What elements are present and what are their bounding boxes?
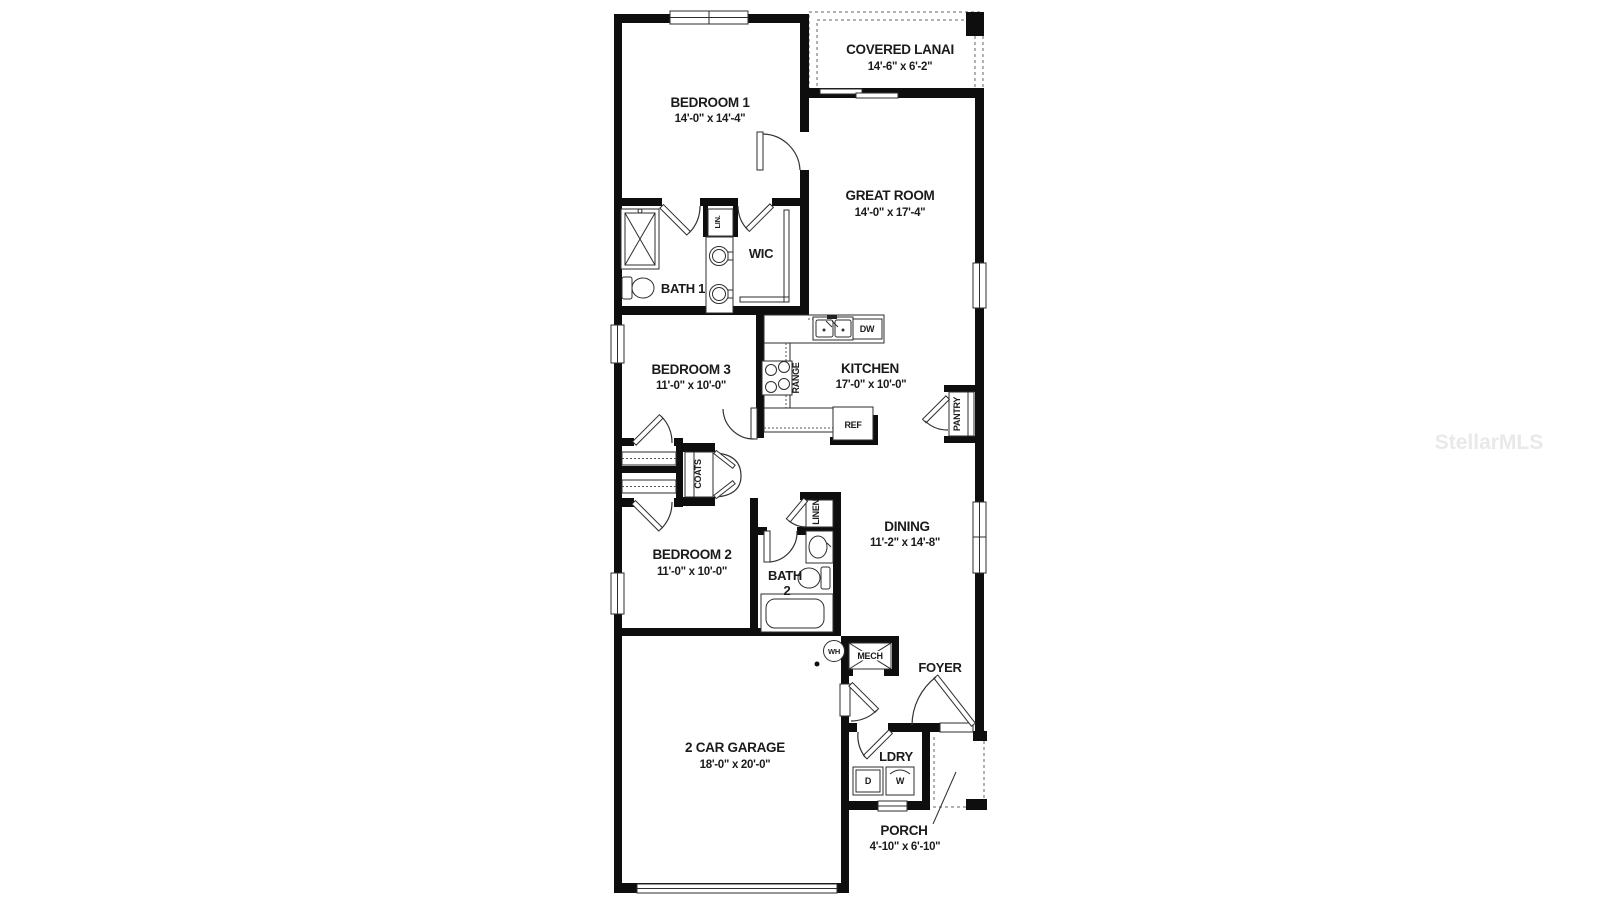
- dining-label: DINING 11'-2" x 14'-8": [870, 519, 940, 549]
- vanity-bath2: [806, 531, 833, 563]
- bathtub: [761, 594, 833, 632]
- laundry-name: LDRY: [879, 749, 913, 764]
- laundry-window: [878, 801, 907, 811]
- porch-dims: 4'-10" x 6'-10": [870, 841, 941, 853]
- garage-entry-opening: [840, 684, 850, 716]
- covered-lanai-name: COVERED LANAI: [846, 42, 954, 57]
- kitchen-dims: 17'-0" x 10'-0": [836, 379, 907, 391]
- garage-door: [637, 884, 837, 893]
- foyer-name: FOYER: [918, 660, 962, 675]
- bedroom2-label: BEDROOM 2 11'-0" x 10'-0": [652, 547, 731, 578]
- mech-closet: MECH: [849, 643, 891, 669]
- pantry-door: [923, 396, 950, 430]
- front-door-opening: [940, 723, 973, 732]
- kitchen-label: KITCHEN 17'-0" x 10'-0": [836, 361, 907, 391]
- covered-lanai-label: COVERED LANAI 14'-6" x 6'-2": [846, 42, 954, 73]
- washer-label: W: [896, 776, 905, 786]
- covered-lanai-dims: 14'-6" x 6'-2": [868, 61, 933, 73]
- bedroom3-dims: 11'-0" x 10'-0": [656, 380, 726, 392]
- bath2-name-line1: BATH: [768, 568, 802, 583]
- bedroom2-door: [632, 501, 672, 531]
- dining-dims: 11'-2" x 14'-8": [870, 537, 940, 549]
- great-room-window: [973, 263, 986, 308]
- dryer: D: [853, 767, 883, 795]
- utility-fixtures: WH MECH D W: [815, 641, 915, 796]
- garage-label: 2 CAR GARAGE 18'-0" x 20'-0": [685, 740, 785, 771]
- front-door: [912, 675, 975, 726]
- washer: W: [886, 767, 914, 795]
- shower: [621, 209, 659, 269]
- stellar-mls-watermark: StellarMLS: [1435, 431, 1544, 454]
- water-heater: WH: [824, 641, 845, 662]
- hall-kitchen-door: [723, 408, 757, 439]
- bedroom3-label: BEDROOM 3 11'-0" x 10'-0": [651, 362, 731, 392]
- great-room-label: GREAT ROOM 14'-0" x 17'-4": [846, 188, 935, 219]
- kitchen-sink: [813, 315, 853, 340]
- porch-leader-line: [933, 772, 956, 824]
- floor-drain: [815, 662, 820, 667]
- floor-plan-page: DW RANGE REF PANTRY: [0, 0, 1600, 899]
- bedroom2-closet-doors: [622, 480, 676, 493]
- bedroom1-dims: 14'-0" x 14'-4": [675, 113, 746, 125]
- toilet-bath2: [798, 567, 830, 589]
- dishwasher-label: DW: [860, 324, 875, 334]
- pantry-closet: PANTRY: [949, 392, 974, 436]
- lin-label: LIN.: [713, 215, 722, 228]
- great-room-dims: 14'-0" x 17'-4": [855, 207, 926, 219]
- floor-plan-drawing: DW RANGE REF PANTRY: [0, 0, 1600, 899]
- water-heater-label: WH: [828, 647, 840, 656]
- bedroom1-label: BEDROOM 1 14'-0" x 14'-4": [670, 95, 750, 125]
- wic-name: WIC: [749, 246, 774, 261]
- refrigerator-label: REF: [844, 420, 862, 430]
- bath2-fixtures: [761, 500, 833, 632]
- toilet-bath1: [622, 277, 654, 299]
- dining-name: DINING: [884, 519, 929, 534]
- garage-dims: 18'-0" x 20'-0": [700, 759, 771, 771]
- bedroom1-name: BEDROOM 1: [670, 95, 750, 110]
- bath1-door: [660, 205, 700, 235]
- porch-outline: [928, 731, 984, 824]
- garage-entry-door: [849, 683, 879, 721]
- bedroom1-window: [670, 11, 748, 24]
- bedroom1-door: [757, 132, 800, 170]
- bath2-name-line2: 2: [784, 583, 791, 598]
- range-label: RANGE: [791, 362, 801, 393]
- bedroom2-window: [611, 573, 624, 614]
- vanity-bath1: [706, 237, 733, 313]
- wic-door: [738, 204, 773, 232]
- garage-name: 2 CAR GARAGE: [685, 740, 785, 755]
- bath2-door: [764, 531, 797, 562]
- dryer-label: D: [865, 776, 872, 786]
- great-room-name: GREAT ROOM: [846, 188, 935, 203]
- bedroom3-closet-doors: [622, 452, 676, 465]
- refrigerator: REF: [833, 407, 873, 440]
- bath1-name: BATH 1: [661, 281, 705, 296]
- bedroom3-window: [611, 325, 624, 363]
- linen-label: LINEN: [811, 499, 821, 525]
- dining-window: [973, 502, 986, 573]
- bedroom2-dims: 11'-0" x 10'-0": [657, 566, 727, 578]
- bedroom2-name: BEDROOM 2: [652, 547, 731, 562]
- bedroom3-name: BEDROOM 3: [651, 362, 731, 377]
- coats-label: COATS: [693, 459, 703, 489]
- kitchen-name: KITCHEN: [841, 361, 899, 376]
- bedroom3-door: [633, 415, 672, 445]
- dishwasher: DW: [853, 319, 882, 339]
- mech-label: MECH: [857, 651, 882, 661]
- porch-label: PORCH 4'-10" x 6'-10": [870, 823, 941, 853]
- linen-door: [786, 498, 807, 527]
- range: RANGE: [762, 361, 801, 395]
- pantry-label: PANTRY: [952, 397, 962, 431]
- porch-name: PORCH: [880, 823, 927, 838]
- kitchen-counters: DW RANGE REF PANTRY: [762, 315, 974, 440]
